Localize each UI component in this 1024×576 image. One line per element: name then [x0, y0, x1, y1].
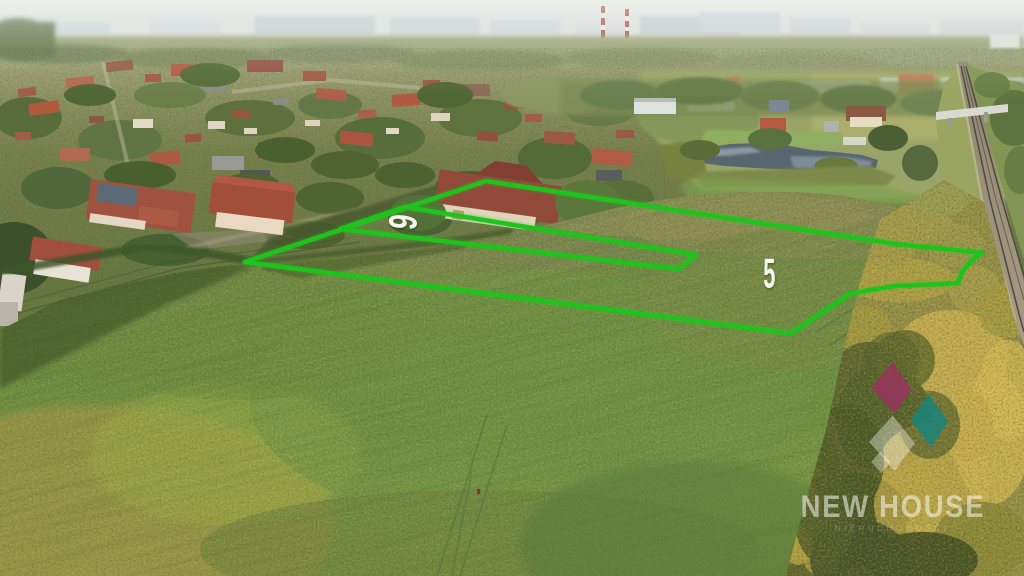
svg-text:NIERUCHOMOSCI: NIERUCHOMOSCI	[835, 524, 949, 533]
svg-text:NEW HOUSE: NEW HOUSE	[801, 489, 986, 524]
svg-text:5: 5	[763, 251, 775, 297]
